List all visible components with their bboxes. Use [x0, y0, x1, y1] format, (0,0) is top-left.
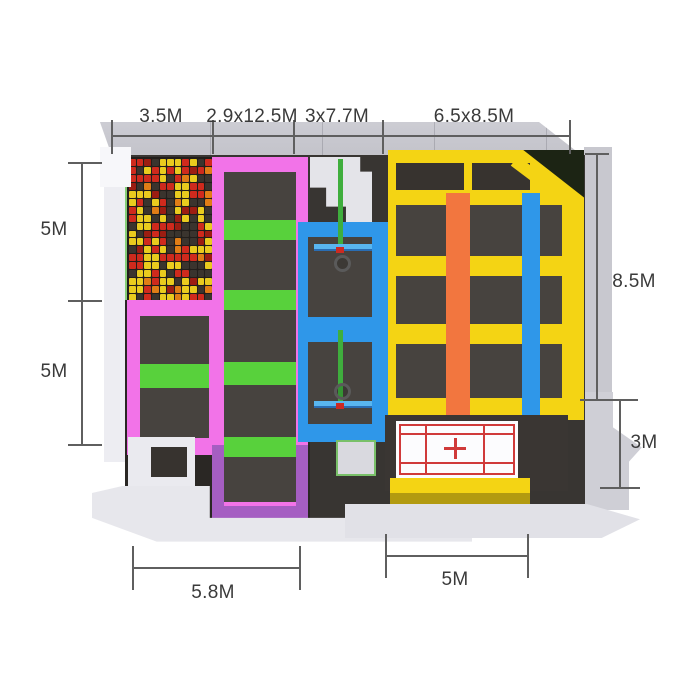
- foam-cube: [175, 215, 182, 222]
- foam-cube: [144, 270, 151, 277]
- foam-cube: [160, 262, 167, 269]
- foam-cube: [160, 286, 167, 293]
- foam-cube: [160, 223, 167, 230]
- foam-cube: [137, 246, 144, 253]
- foam-cube: [182, 167, 189, 174]
- foam-cube: [182, 286, 189, 293]
- foam-cube: [175, 286, 182, 293]
- foam-cube: [182, 262, 189, 269]
- foam-cube: [144, 207, 151, 214]
- kickplate-yellow-top: [390, 478, 530, 493]
- foam-cube: [160, 246, 167, 253]
- foam-cube: [152, 175, 159, 182]
- foam-cube: [205, 246, 212, 253]
- hoop-tip: [336, 247, 344, 253]
- foam-cube: [129, 238, 136, 245]
- foam-cube: [190, 191, 197, 198]
- foam-cube: [144, 191, 151, 198]
- foam-cube: [205, 231, 212, 238]
- foam-cube: [144, 167, 151, 174]
- hoop-tip: [336, 403, 344, 409]
- dim-line-right-1: [596, 154, 598, 400]
- foam-cube: [190, 254, 197, 261]
- foam-cube: [190, 159, 197, 166]
- foam-cube: [152, 207, 159, 214]
- foam-cube: [129, 223, 136, 230]
- foam-cube: [137, 215, 144, 222]
- airbag-mat: [396, 421, 518, 478]
- foam-cube: [190, 167, 197, 174]
- foam-cube: [190, 231, 197, 238]
- foam-cube: [152, 238, 159, 245]
- foam-cube: [175, 231, 182, 238]
- yellow-court: [388, 150, 584, 420]
- lane-stripe-blue: [522, 193, 540, 420]
- foam-cube: [137, 199, 144, 206]
- foam-cube: [167, 286, 174, 293]
- foam-cube: [144, 159, 151, 166]
- hoop-pole: [338, 159, 343, 247]
- foam-cube: [205, 207, 212, 214]
- foam-cube: [182, 278, 189, 285]
- mat-grid-line-h: [399, 433, 515, 435]
- foam-cube: [175, 183, 182, 190]
- foam-cube: [137, 223, 144, 230]
- kickplate-yellow-side: [390, 493, 530, 504]
- dim-label-top-4: 6.5x8.5M: [414, 105, 534, 129]
- foam-cube: [205, 191, 212, 198]
- dim-label-left-2: 5M: [34, 360, 74, 384]
- foam-cube: [129, 278, 136, 285]
- foam-cube: [198, 191, 205, 198]
- foam-cube: [198, 278, 205, 285]
- foam-cube: [182, 207, 189, 214]
- dim-tick: [68, 162, 102, 164]
- foam-cube: [152, 167, 159, 174]
- foam-cube: [144, 199, 151, 206]
- trampoline-pad: [224, 385, 296, 437]
- foam-cube: [160, 175, 167, 182]
- floor-slab-right: [345, 504, 640, 538]
- foam-cube: [198, 262, 205, 269]
- dim-label-bottom-1: 5.8M: [173, 581, 253, 605]
- pink-court-center: [212, 157, 308, 520]
- foam-cube: [137, 231, 144, 238]
- foam-cube: [205, 199, 212, 206]
- dim-tick: [527, 534, 529, 578]
- foam-cube: [175, 207, 182, 214]
- foam-cube: [167, 215, 174, 222]
- top-wall-opening: [396, 163, 464, 190]
- foam-cube: [167, 199, 174, 206]
- spring-pad: [224, 290, 296, 310]
- dim-tick: [600, 487, 640, 489]
- foam-cube: [198, 254, 205, 261]
- dim-tick: [68, 444, 102, 446]
- foam-cube: [160, 215, 167, 222]
- foam-cube: [175, 159, 182, 166]
- mat-grid-line-h: [399, 462, 515, 464]
- foam-cube: [167, 207, 174, 214]
- foam-cube: [182, 223, 189, 230]
- foam-cube: [198, 270, 205, 277]
- foam-cube: [182, 159, 189, 166]
- foam-cube: [198, 159, 205, 166]
- spring-pad: [224, 220, 296, 240]
- foam-cube: [175, 254, 182, 261]
- pink-court-left: [127, 300, 222, 455]
- foam-cube: [205, 215, 212, 222]
- foam-cube: [167, 238, 174, 245]
- foam-cube: [182, 231, 189, 238]
- foam-cube: [198, 231, 205, 238]
- dim-tick: [111, 120, 113, 154]
- foam-cube: [129, 270, 136, 277]
- dim-tick: [132, 546, 134, 590]
- dim-label-left-1: 5M: [34, 218, 74, 242]
- foam-cube: [144, 215, 151, 222]
- foam-cube: [198, 238, 205, 245]
- foam-cube: [190, 199, 197, 206]
- foam-cube: [152, 223, 159, 230]
- foam-cube: [198, 246, 205, 253]
- foam-cube: [160, 231, 167, 238]
- foam-cube: [137, 167, 144, 174]
- foam-cube: [160, 191, 167, 198]
- wall-corner-notch: [100, 147, 131, 187]
- foam-cube: [137, 270, 144, 277]
- foam-cube: [144, 223, 151, 230]
- foam-cube: [160, 199, 167, 206]
- foam-cube: [182, 199, 189, 206]
- foam-cube: [152, 278, 159, 285]
- foam-cube: [167, 270, 174, 277]
- foam-cube: [205, 238, 212, 245]
- foam-cube: [167, 254, 174, 261]
- foam-cube: [160, 167, 167, 174]
- stairs-landing: [151, 447, 187, 477]
- foam-cube: [160, 254, 167, 261]
- dim-label-right-1: 8.5M: [606, 270, 662, 294]
- foam-cube: [144, 254, 151, 261]
- foam-cube: [152, 215, 159, 222]
- foam-cube: [205, 167, 212, 174]
- foam-cube: [144, 286, 151, 293]
- foam-cube: [182, 191, 189, 198]
- foam-cube: [175, 262, 182, 269]
- floorplan-scene: 3.5M 2.9x12.5M 3x7.7M 6.5x8.5M 5M 5M 8.5…: [0, 0, 700, 700]
- foam-cube: [160, 270, 167, 277]
- foam-cube: [175, 223, 182, 230]
- foam-cube: [190, 183, 197, 190]
- foam-cube: [129, 207, 136, 214]
- trampoline-pad: [224, 172, 296, 220]
- foam-cube: [182, 246, 189, 253]
- foam-cube: [175, 238, 182, 245]
- trampoline-pad: [224, 310, 296, 362]
- dim-label-right-2: 3M: [624, 431, 664, 455]
- foam-cube: [167, 183, 174, 190]
- landing-pad: [336, 440, 376, 476]
- foam-cube: [152, 191, 159, 198]
- dim-label-top-3: 3x7.7M: [287, 105, 387, 129]
- hoop-ring: [334, 383, 351, 400]
- foam-cube: [190, 246, 197, 253]
- foam-cube: [182, 254, 189, 261]
- foam-cube: [137, 254, 144, 261]
- foam-pit: [127, 157, 214, 303]
- foam-cube: [167, 175, 174, 182]
- foam-cube: [182, 238, 189, 245]
- foam-cube: [190, 175, 197, 182]
- foam-cube: [144, 231, 151, 238]
- foam-cube: [137, 159, 144, 166]
- spring-pad: [224, 362, 296, 385]
- foam-cube: [182, 183, 189, 190]
- foam-cube: [137, 191, 144, 198]
- foam-cube: [137, 238, 144, 245]
- foam-cube: [144, 238, 151, 245]
- foam-cube: [129, 199, 136, 206]
- foam-cube: [137, 175, 144, 182]
- foam-cube: [144, 278, 151, 285]
- dim-tick: [580, 399, 638, 401]
- foam-cube: [160, 159, 167, 166]
- foam-cube: [190, 238, 197, 245]
- foam-cube: [175, 270, 182, 277]
- foam-cube: [167, 231, 174, 238]
- foam-cube: [190, 223, 197, 230]
- foam-cube: [160, 238, 167, 245]
- foam-cube: [190, 207, 197, 214]
- foam-cube: [190, 215, 197, 222]
- foam-cube: [198, 167, 205, 174]
- foam-cube: [137, 183, 144, 190]
- foam-cube: [198, 199, 205, 206]
- foam-cube: [152, 262, 159, 269]
- foam-cube: [198, 175, 205, 182]
- foam-cube: [152, 286, 159, 293]
- foam-cube: [190, 278, 197, 285]
- foam-cube: [167, 223, 174, 230]
- dim-line-right-2: [619, 401, 621, 489]
- foam-cube: [160, 278, 167, 285]
- foam-cube: [198, 215, 205, 222]
- trampoline-pad: [140, 316, 209, 364]
- mat-grid-line-v: [425, 424, 427, 475]
- foam-cube: [205, 183, 212, 190]
- foam-cube: [198, 286, 205, 293]
- foam-cube: [205, 159, 212, 166]
- foam-cube: [198, 207, 205, 214]
- foam-cube: [205, 254, 212, 261]
- foam-cube: [167, 191, 174, 198]
- foam-cube: [152, 159, 159, 166]
- foam-cube: [167, 167, 174, 174]
- dim-tick: [299, 546, 301, 590]
- foam-cube: [129, 262, 136, 269]
- foam-cube: [167, 278, 174, 285]
- foam-cube: [175, 191, 182, 198]
- foam-cube: [152, 270, 159, 277]
- mat-grid-line-v: [483, 424, 485, 475]
- foam-cube: [144, 262, 151, 269]
- foam-cube: [160, 207, 167, 214]
- foam-cube: [182, 175, 189, 182]
- foam-cube: [137, 207, 144, 214]
- foam-cube: [152, 231, 159, 238]
- dim-label-bottom-2: 5M: [425, 568, 485, 592]
- foam-cube: [198, 223, 205, 230]
- foam-cube: [152, 199, 159, 206]
- dim-line-left: [81, 163, 83, 445]
- dim-tick: [385, 534, 387, 578]
- dim-line-bottom-2: [385, 555, 528, 557]
- foam-cube: [175, 278, 182, 285]
- dim-line-bottom-1: [132, 567, 300, 569]
- foam-cube: [160, 183, 167, 190]
- foam-cube: [175, 199, 182, 206]
- hoop-ring: [334, 255, 351, 272]
- foam-cube: [137, 286, 144, 293]
- foam-cube: [175, 167, 182, 174]
- court-shadow-frame: [212, 445, 308, 520]
- dim-line-top: [111, 135, 570, 137]
- dim-tick: [585, 153, 609, 155]
- foam-cube: [198, 183, 205, 190]
- foam-cube: [144, 246, 151, 253]
- foam-cube: [144, 183, 151, 190]
- mat-center-cross: [454, 438, 457, 459]
- foam-cube: [205, 286, 212, 293]
- lane-stripe-orange: [446, 193, 470, 420]
- foam-cube: [167, 262, 174, 269]
- foam-cube: [175, 246, 182, 253]
- foam-cube: [129, 191, 136, 198]
- foam-cube: [129, 246, 136, 253]
- foam-cube: [205, 270, 212, 277]
- foam-cube: [144, 175, 151, 182]
- foam-cube: [129, 231, 136, 238]
- trampoline-pad: [224, 240, 296, 290]
- foam-cube: [167, 159, 174, 166]
- foam-cube: [137, 278, 144, 285]
- foam-cube: [205, 175, 212, 182]
- foam-cube: [205, 223, 212, 230]
- foam-cube: [190, 262, 197, 269]
- dim-tick: [569, 120, 571, 154]
- spring-pad: [140, 364, 209, 388]
- foam-cube: [137, 262, 144, 269]
- foam-cube: [205, 262, 212, 269]
- foam-cube: [175, 175, 182, 182]
- foam-cube: [152, 246, 159, 253]
- dim-tick: [68, 300, 102, 302]
- foam-cube: [182, 270, 189, 277]
- foam-cube: [152, 183, 159, 190]
- foam-cube: [129, 254, 136, 261]
- foam-cube: [152, 254, 159, 261]
- trampoline-pad: [140, 388, 209, 438]
- dim-label-top-1: 3.5M: [121, 105, 201, 129]
- foam-cube: [190, 270, 197, 277]
- foam-cube: [190, 286, 197, 293]
- foam-cube: [167, 246, 174, 253]
- foam-cube: [129, 215, 136, 222]
- foam-cube: [205, 278, 212, 285]
- foam-cube: [182, 215, 189, 222]
- foam-cube: [129, 286, 136, 293]
